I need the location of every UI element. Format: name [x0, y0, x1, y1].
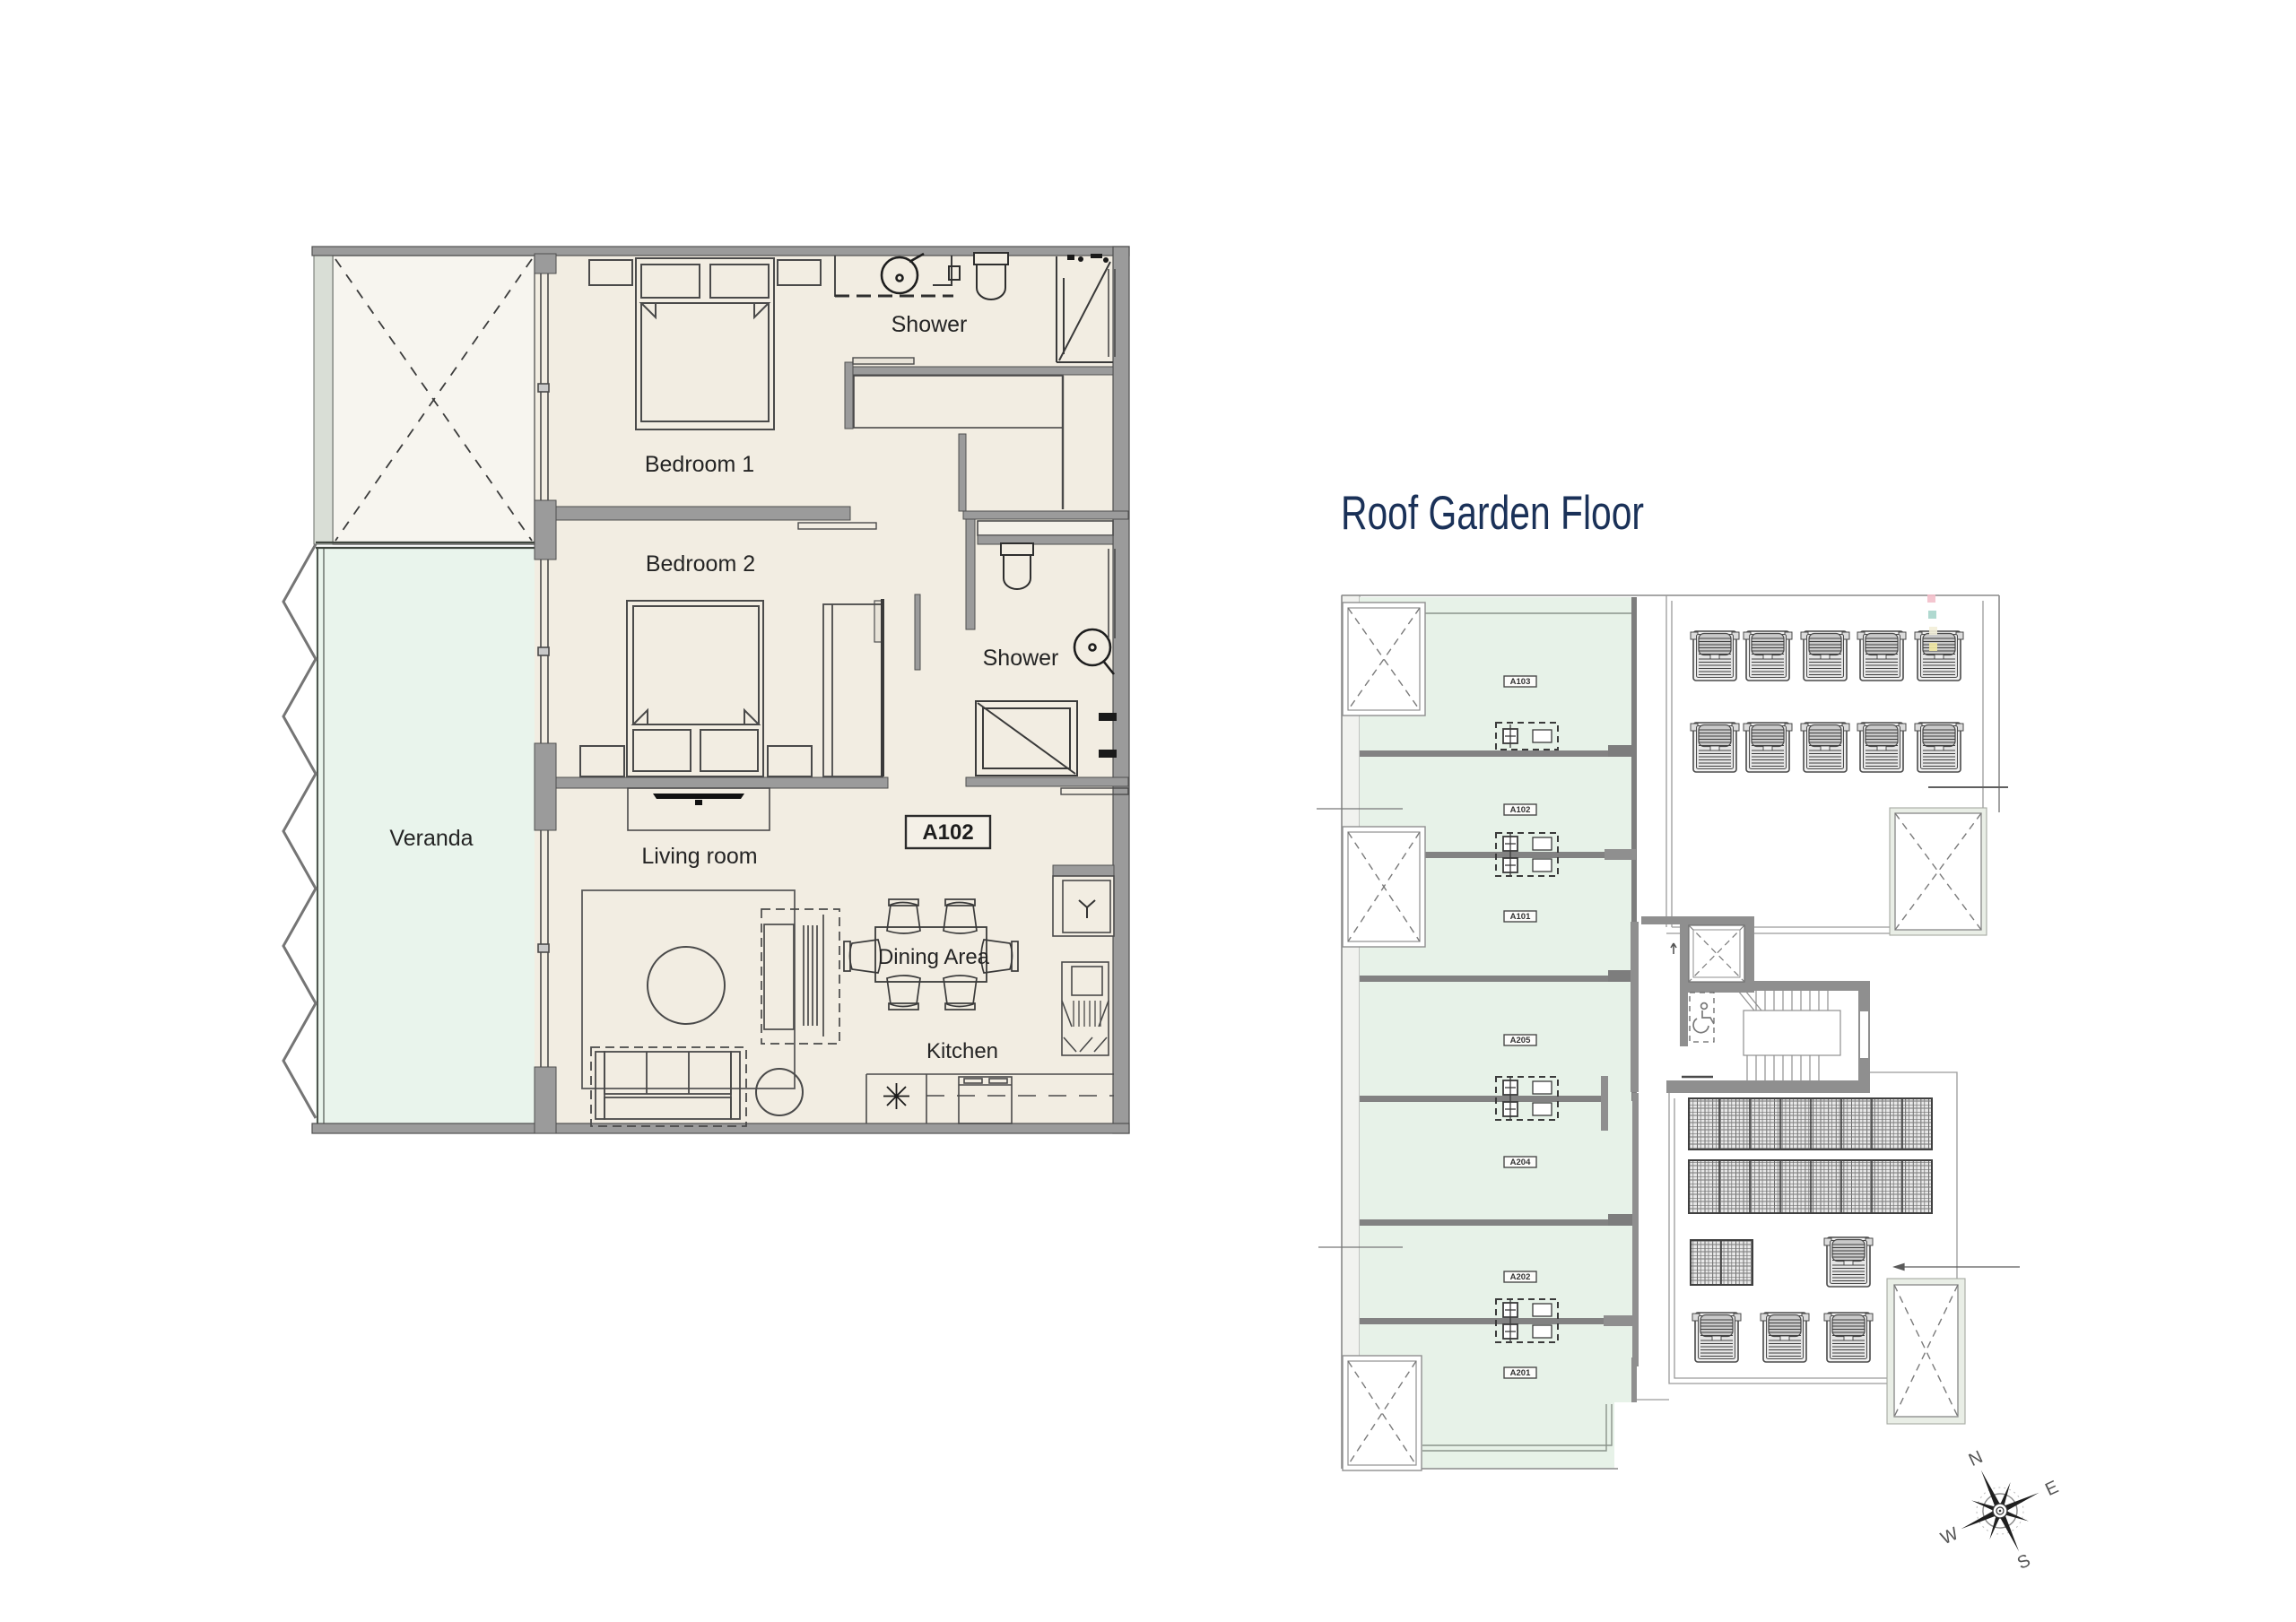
svg-text:A204: A204	[1510, 1158, 1531, 1167]
svg-text:A202: A202	[1510, 1272, 1531, 1282]
svg-text:Shower: Shower	[891, 312, 968, 337]
svg-text:Shower: Shower	[983, 646, 1059, 671]
svg-text:Dining Area: Dining Area	[878, 945, 990, 969]
svg-text:A102: A102	[922, 820, 973, 845]
svg-text:Living room: Living room	[641, 844, 757, 869]
svg-text:Roof Garden Floor: Roof Garden Floor	[1341, 487, 1644, 540]
svg-text:Bedroom 2: Bedroom 2	[646, 551, 755, 577]
svg-text:Kitchen: Kitchen	[926, 1039, 998, 1063]
svg-text:A102: A102	[1510, 805, 1531, 815]
svg-text:A205: A205	[1510, 1036, 1531, 1045]
svg-text:Veranda: Veranda	[389, 826, 473, 851]
svg-text:A103: A103	[1510, 677, 1531, 687]
svg-text:A201: A201	[1510, 1368, 1531, 1378]
svg-text:Bedroom 1: Bedroom 1	[645, 452, 754, 477]
svg-text:A101: A101	[1510, 912, 1531, 922]
